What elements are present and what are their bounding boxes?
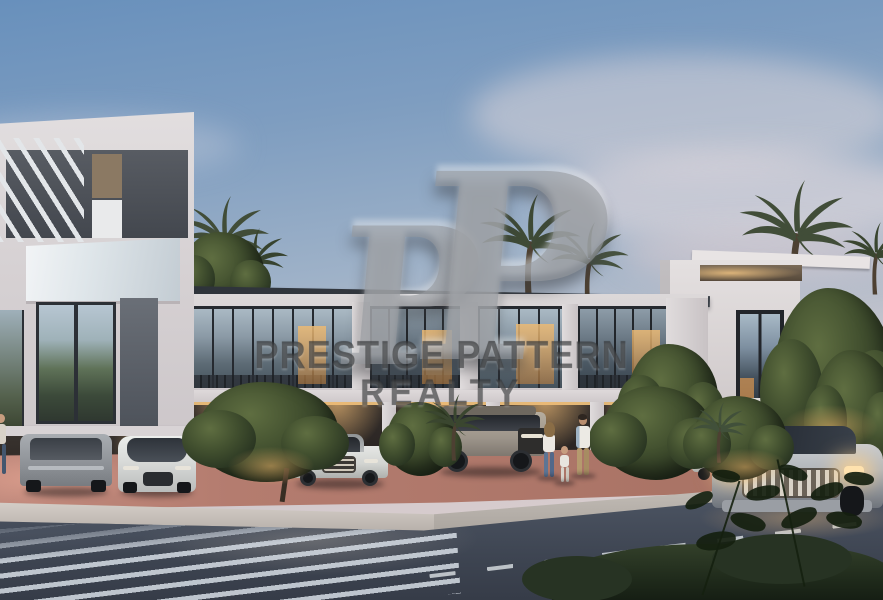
facade-pier <box>460 302 478 390</box>
man-hair <box>578 414 587 420</box>
leaf <box>695 530 737 552</box>
wheel <box>510 450 532 472</box>
wheel <box>177 482 191 493</box>
child-shirt <box>560 455 569 467</box>
leaf <box>778 504 819 532</box>
small-palm <box>418 394 490 462</box>
rear-window <box>30 438 102 460</box>
right-villa-soffit-light <box>700 265 802 281</box>
photo-canvas: P P PRESTIGE PATTERN REALTY <box>0 0 883 600</box>
man-shirt <box>576 426 590 448</box>
person-legs <box>0 444 6 474</box>
headlight <box>175 466 191 470</box>
left-villa-window <box>36 302 116 424</box>
headlight <box>123 466 139 470</box>
foreground-branch-silhouette <box>600 458 883 600</box>
front-grille <box>143 472 173 486</box>
leaf <box>843 469 875 487</box>
woman-hair <box>544 422 555 437</box>
lit-window <box>298 326 326 384</box>
leaf <box>728 508 767 535</box>
person-woman <box>543 424 555 477</box>
warm-bush-light <box>226 446 316 486</box>
trouser-leg <box>577 448 582 475</box>
trouser-leg <box>584 448 589 475</box>
person-shadow <box>554 480 575 486</box>
pedestrian-left-edge <box>0 414 6 474</box>
wheel <box>362 470 378 486</box>
person-leg <box>2 444 6 474</box>
jeans-leg <box>550 452 554 477</box>
wheel <box>26 480 41 492</box>
lit-window <box>516 324 554 384</box>
person-head <box>0 414 5 423</box>
wall-panel <box>92 200 122 238</box>
jeans-leg <box>544 452 548 477</box>
person-legs <box>577 448 589 475</box>
leaf <box>825 508 864 532</box>
light-bar <box>521 434 543 438</box>
right-villa-interior-light <box>740 378 754 398</box>
lit-window <box>422 330 452 384</box>
person-child <box>560 446 569 482</box>
person-torso <box>0 424 6 444</box>
pergola-roof-slats <box>0 138 84 242</box>
glass-balcony <box>26 238 180 304</box>
leaf <box>711 467 741 485</box>
leaf <box>809 480 846 504</box>
person-head <box>561 446 568 454</box>
windshield <box>127 438 187 462</box>
facade-pier <box>562 304 578 390</box>
headlight <box>364 459 378 463</box>
wood-panel <box>92 154 122 198</box>
wheel <box>123 482 137 493</box>
person-legs <box>544 452 554 477</box>
chrome-trim <box>28 466 104 470</box>
dark-wall-panel <box>120 298 158 426</box>
grey-suv-carport <box>20 426 112 494</box>
person-man <box>576 416 590 475</box>
wheel <box>91 480 106 492</box>
leaf <box>745 484 781 503</box>
facade-pier <box>352 302 370 390</box>
leaf <box>683 488 716 512</box>
person-shadow <box>570 473 596 479</box>
